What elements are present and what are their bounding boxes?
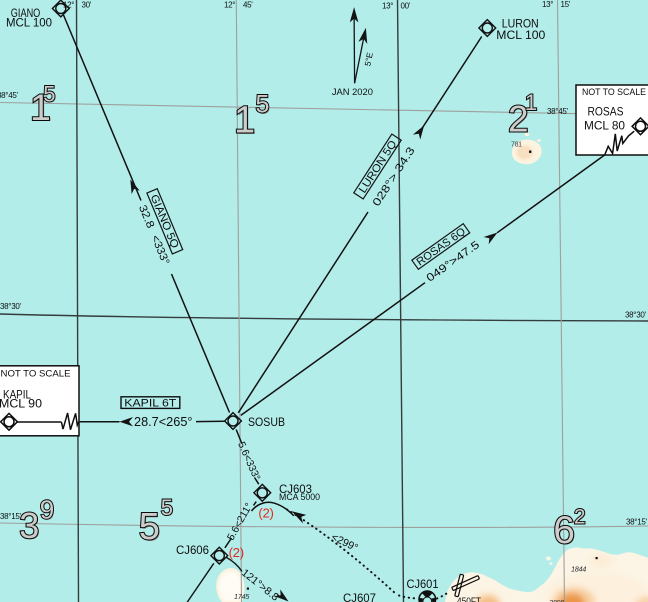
svg-text:MCA 5000: MCA 5000	[279, 492, 320, 502]
svg-text:1745: 1745	[234, 592, 250, 601]
svg-text:9: 9	[40, 495, 54, 525]
svg-text:2898: 2898	[548, 598, 565, 602]
svg-text:CJ607: CJ607	[343, 591, 376, 602]
svg-text:MCL 100: MCL 100	[496, 28, 545, 42]
svg-text:38°30': 38°30'	[625, 311, 646, 320]
svg-text:(2): (2)	[229, 545, 244, 560]
svg-text:SOSUB: SOSUB	[248, 415, 285, 429]
svg-text:MCL 90: MCL 90	[0, 397, 42, 411]
svg-text:6: 6	[553, 509, 575, 552]
svg-text:38°45': 38°45'	[0, 91, 18, 100]
svg-text:13°: 13°	[382, 2, 393, 11]
svg-text:1844: 1844	[571, 565, 586, 574]
svg-text:781: 781	[511, 142, 522, 149]
svg-text:38°30': 38°30'	[0, 302, 21, 311]
svg-text:JAN 2020: JAN 2020	[332, 87, 373, 98]
svg-text:1: 1	[525, 90, 538, 115]
svg-text:2: 2	[574, 505, 586, 528]
svg-text:38°15': 38°15'	[626, 518, 647, 527]
svg-text:3: 3	[19, 505, 39, 546]
svg-text:MCL 80: MCL 80	[584, 118, 625, 132]
svg-text:15': 15'	[561, 0, 571, 9]
svg-text:NOT TO SCALE: NOT TO SCALE	[1, 369, 71, 380]
svg-text:(2): (2)	[258, 506, 273, 521]
svg-text:ROSAS: ROSAS	[588, 104, 624, 118]
svg-text:5: 5	[43, 82, 55, 107]
svg-text:30': 30'	[82, 1, 92, 10]
svg-text:CJ606: CJ606	[176, 543, 209, 557]
svg-text:5: 5	[161, 495, 173, 520]
svg-text:MCL 100: MCL 100	[6, 16, 52, 30]
svg-text:1: 1	[234, 100, 255, 142]
svg-text:45': 45'	[243, 1, 253, 10]
svg-text:KAPIL 6T: KAPIL 6T	[124, 397, 176, 409]
svg-text:00': 00'	[401, 2, 411, 11]
svg-text:13°: 13°	[542, 0, 553, 9]
svg-text:12°: 12°	[224, 1, 235, 10]
svg-text:38°45': 38°45'	[547, 107, 568, 116]
svg-text:CJ601: CJ601	[407, 577, 439, 591]
svg-text:28.7<265°: 28.7<265°	[134, 415, 193, 429]
svg-text:5: 5	[256, 91, 270, 119]
svg-text:450FT: 450FT	[457, 596, 481, 602]
svg-text:5: 5	[139, 506, 160, 548]
svg-text:NOT TO SCALE: NOT TO SCALE	[582, 87, 646, 98]
